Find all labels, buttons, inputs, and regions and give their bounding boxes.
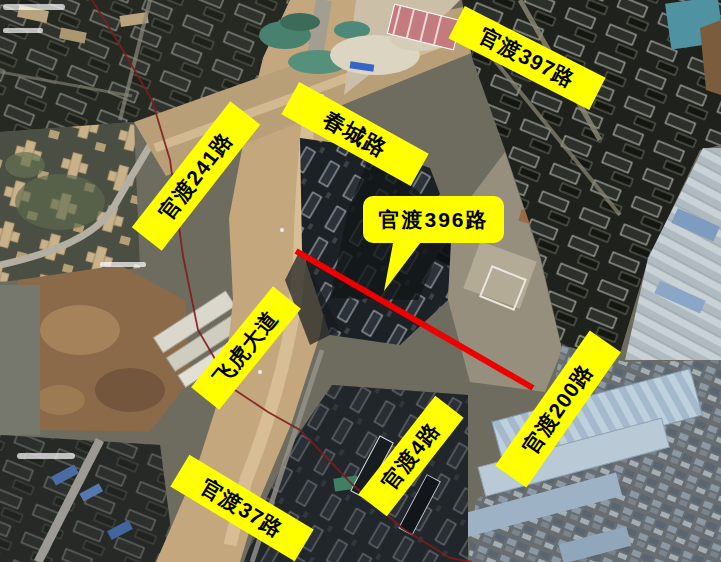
satellite-map-view: 官渡397路 春城路 官渡241路 官渡396路 飞虎大道 官渡4路 官渡37路… — [0, 0, 721, 562]
terrain-layer — [0, 0, 721, 562]
satellite-imagery — [0, 0, 721, 562]
road-label-guandu-396-callout: 官渡396路 — [363, 196, 504, 243]
